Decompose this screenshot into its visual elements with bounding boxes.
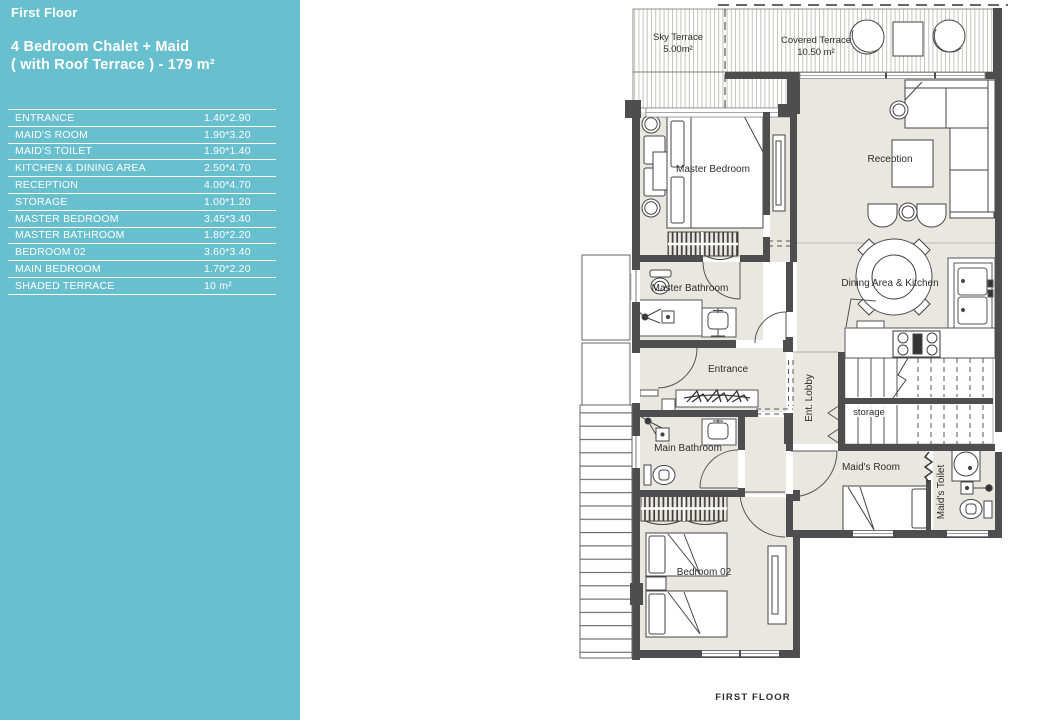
room-size: 10 m²	[204, 280, 276, 292]
room-size: 4.00*4.70	[204, 179, 276, 191]
nightstand	[646, 577, 666, 590]
floor-plan: Sky Terrace 5.00m² Covered Terrace 10.50…	[560, 0, 1049, 720]
table-row: RECEPTION 4.00*4.70	[8, 176, 276, 193]
floor-plan-drawing: Sky Terrace 5.00m² Covered Terrace 10.50…	[560, 0, 1049, 720]
room-name: RECEPTION	[8, 179, 204, 191]
bedroom02-label: Bedroom 02	[677, 567, 732, 578]
sky-terrace-label: Sky Terrace	[653, 32, 703, 43]
room-size: 1.80*2.20	[204, 229, 276, 241]
master-bedroom-label: Master Bedroom	[676, 164, 750, 175]
room-name: MASTER BATHROOM	[8, 229, 204, 241]
table-row: MASTER BEDROOM 3.45*3.40	[8, 210, 276, 227]
room-name: STORAGE	[8, 196, 204, 208]
table-row: BEDROOM 02 3.60*3.40	[8, 243, 276, 260]
room-name: SHADED TERRACE	[8, 280, 204, 292]
master-bathroom-label: Master Bathroom	[652, 283, 729, 294]
room-size: 3.60*3.40	[204, 246, 276, 258]
terrace-table	[893, 22, 923, 56]
sky-terrace-area: 5.00m²	[663, 44, 693, 55]
single-bed	[646, 591, 727, 637]
covered-terrace-label: Covered Terrace	[781, 35, 851, 46]
table-row: MASTER BATHROOM 1.80*2.20	[8, 227, 276, 244]
main-bathroom-label: Main Bathroom	[654, 443, 722, 454]
sink-vanity	[702, 419, 736, 445]
ent-lobby-label: Ent. Lobby	[804, 374, 815, 422]
room-name: KITCHEN & DINING AREA	[8, 162, 204, 174]
maids-room-label: Maid's Room	[842, 462, 900, 473]
table-row: STORAGE 1.00*1.20	[8, 193, 276, 210]
bedroom02-wardrobe	[641, 496, 727, 525]
covered-terrace-area: 10.50 m²	[797, 47, 835, 58]
room-size: 1.00*1.20	[204, 196, 276, 208]
room-size: 3.45*3.40	[204, 213, 276, 225]
tub-chair	[917, 204, 946, 227]
internal-staircase	[845, 358, 993, 444]
table-row: MAIN BEDROOM 1.70*2.20	[8, 260, 276, 277]
room-name: MAIN BEDROOM	[8, 263, 204, 275]
room-name: MASTER BEDROOM	[8, 213, 204, 225]
entrance-label: Entrance	[708, 364, 748, 375]
stove	[893, 331, 940, 357]
room-size: 1.90*3.20	[204, 129, 276, 141]
room-name: MAID'S ROOM	[8, 129, 204, 141]
shower	[638, 300, 702, 336]
table-row: KITCHEN & DINING AREA 2.50*4.70	[8, 159, 276, 176]
table-row: MAID'S ROOM 1.90*3.20	[8, 126, 276, 143]
window-zigzag	[925, 452, 932, 482]
storage-label: storage	[853, 407, 885, 418]
floor-label: First Floor	[11, 5, 77, 20]
table-row: SHADED TERRACE 10 m²	[8, 277, 276, 295]
chalet-title: 4 Bedroom Chalet + Maid ( with Roof Terr…	[11, 38, 215, 74]
page: { "sidebar": { "bg_color": "#68bfce", "f…	[0, 0, 1049, 720]
room-size: 1.40*2.90	[204, 112, 276, 124]
dining-kitchen-label: Dining Area & Kitchen	[841, 278, 938, 289]
chalet-title-line2: ( with Roof Terrace ) - 179 m²	[11, 56, 215, 74]
spec-sidebar: First Floor 4 Bedroom Chalet + Maid ( wi…	[0, 0, 300, 720]
maids-toilet-label: Maid's Toilet	[936, 465, 947, 520]
sink-vanity	[702, 308, 736, 337]
dimension-table: ENTRANCE 1.40*2.90 MAID'S ROOM 1.90*3.20…	[8, 109, 276, 295]
external-staircase	[580, 405, 632, 658]
room-size: 2.50*4.70	[204, 162, 276, 174]
room-size: 1.90*1.40	[204, 145, 276, 157]
reception-label: Reception	[867, 154, 912, 165]
room-size: 1.70*2.20	[204, 263, 276, 275]
table-row: ENTRANCE 1.40*2.90	[8, 109, 276, 126]
room-name: MAID'S TOILET	[8, 145, 204, 157]
plan-caption: FIRST FLOOR	[715, 692, 790, 703]
tub-chair	[868, 204, 897, 227]
room-name: ENTRANCE	[8, 112, 204, 124]
maid-bed	[843, 486, 930, 531]
chalet-title-line1: 4 Bedroom Chalet + Maid	[11, 38, 215, 56]
room-name: BEDROOM 02	[8, 246, 204, 258]
toilet	[644, 465, 675, 485]
table-row: MAID'S TOILET 1.90*1.40	[8, 143, 276, 160]
